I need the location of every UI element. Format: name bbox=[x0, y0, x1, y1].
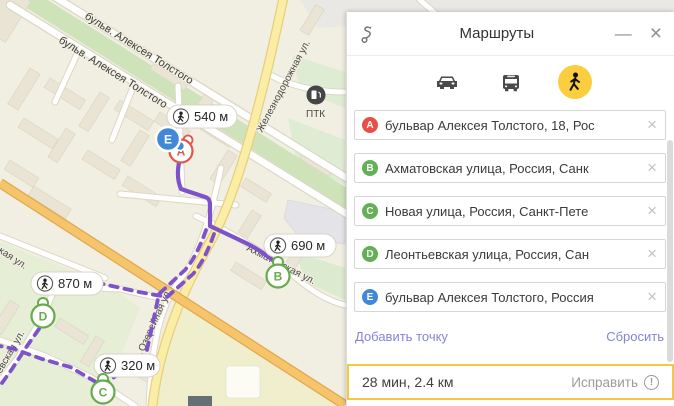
distance-badge-540: 540 м bbox=[167, 105, 237, 128]
mode-car-button[interactable] bbox=[430, 65, 464, 99]
svg-text:540 м: 540 м bbox=[194, 109, 228, 124]
waypoint-address-c[interactable]: Новая улица, Россия, Санкт-Пете bbox=[385, 204, 639, 219]
svg-text:D: D bbox=[39, 310, 48, 324]
warning-icon: ! bbox=[644, 375, 659, 390]
svg-text:C: C bbox=[99, 386, 108, 400]
clear-waypoint-c-icon[interactable]: × bbox=[639, 201, 665, 221]
svg-text:870 м: 870 м bbox=[58, 276, 92, 291]
waypoint-input-d[interactable]: D Леонтьевская улица, Россия, Сан × bbox=[354, 239, 666, 269]
svg-text:320 м: 320 м bbox=[121, 358, 155, 373]
mode-bus-button[interactable] bbox=[494, 65, 528, 99]
transport-mode-switcher bbox=[347, 56, 674, 108]
clear-waypoint-a-icon[interactable]: × bbox=[639, 115, 665, 135]
waypoint-list: A бульвар Алексея Толстого, 18, Рос × B … bbox=[347, 108, 674, 312]
waypoint-input-e[interactable]: E бульвар Алексея Толстого, Россия × bbox=[354, 282, 666, 312]
minimize-button[interactable]: — bbox=[615, 25, 632, 42]
routes-panel: Маршруты — × bbox=[346, 12, 674, 406]
svg-text:690 м: 690 м bbox=[291, 238, 325, 253]
route-summary-bar[interactable]: 28 мин, 2.4 км Исправить ! bbox=[347, 364, 674, 400]
clear-waypoint-d-icon[interactable]: × bbox=[639, 244, 665, 264]
reset-link[interactable]: Сбросить bbox=[606, 329, 664, 344]
distance-badge-870: 870 м bbox=[31, 272, 103, 295]
page-title: Маршруты bbox=[379, 25, 615, 42]
waypoint-address-d[interactable]: Леонтьевская улица, Россия, Сан bbox=[385, 247, 639, 262]
waypoint-input-b[interactable]: B Ахматовская улица, Россия, Санк × bbox=[354, 153, 666, 183]
distance-badge-690: 690 м bbox=[264, 234, 336, 257]
waypoint-chip-d: D bbox=[362, 246, 378, 262]
add-point-link[interactable]: Добавить точку bbox=[355, 329, 448, 344]
route-squiggle-icon bbox=[359, 24, 379, 44]
waypoint-address-e[interactable]: бульвар Алексея Толстого, Россия bbox=[385, 290, 639, 305]
waypoint-chip-a: A bbox=[362, 117, 378, 133]
car-icon bbox=[435, 73, 459, 92]
bus-icon bbox=[500, 73, 522, 92]
close-icon[interactable]: × bbox=[650, 23, 662, 44]
panel-header: Маршруты — × bbox=[347, 12, 674, 56]
route-summary: 28 мин, 2.4 км bbox=[362, 374, 454, 390]
pedestrian-icon bbox=[565, 71, 585, 93]
fix-route-label: Исправить bbox=[571, 375, 638, 390]
panel-scrollbar[interactable] bbox=[667, 140, 673, 362]
poi-gas-station-label: ПТК bbox=[306, 109, 325, 120]
svg-text:E: E bbox=[164, 133, 172, 147]
waypoint-address-b[interactable]: Ахматовская улица, Россия, Санк bbox=[385, 161, 639, 176]
mode-pedestrian-button[interactable] bbox=[558, 65, 592, 99]
clear-waypoint-b-icon[interactable]: × bbox=[639, 158, 665, 178]
yandex-maps-app: бульв. Алексея Толстого бульв. Алексея Т… bbox=[0, 0, 674, 406]
waypoint-address-a[interactable]: бульвар Алексея Толстого, 18, Рос bbox=[385, 118, 639, 133]
waypoint-chip-e: E bbox=[362, 289, 378, 305]
fix-route-link[interactable]: Исправить ! bbox=[571, 375, 659, 390]
waypoint-input-a[interactable]: A бульвар Алексея Толстого, 18, Рос × bbox=[354, 110, 666, 140]
clear-waypoint-e-icon[interactable]: × bbox=[639, 287, 665, 307]
waypoint-chip-b: B bbox=[362, 160, 378, 176]
waypoint-input-c[interactable]: C Новая улица, Россия, Санкт-Пете × bbox=[354, 196, 666, 226]
svg-text:B: B bbox=[274, 270, 283, 284]
waypoint-actions: Добавить точку Сбросить bbox=[347, 325, 674, 344]
waypoint-chip-c: C bbox=[362, 203, 378, 219]
